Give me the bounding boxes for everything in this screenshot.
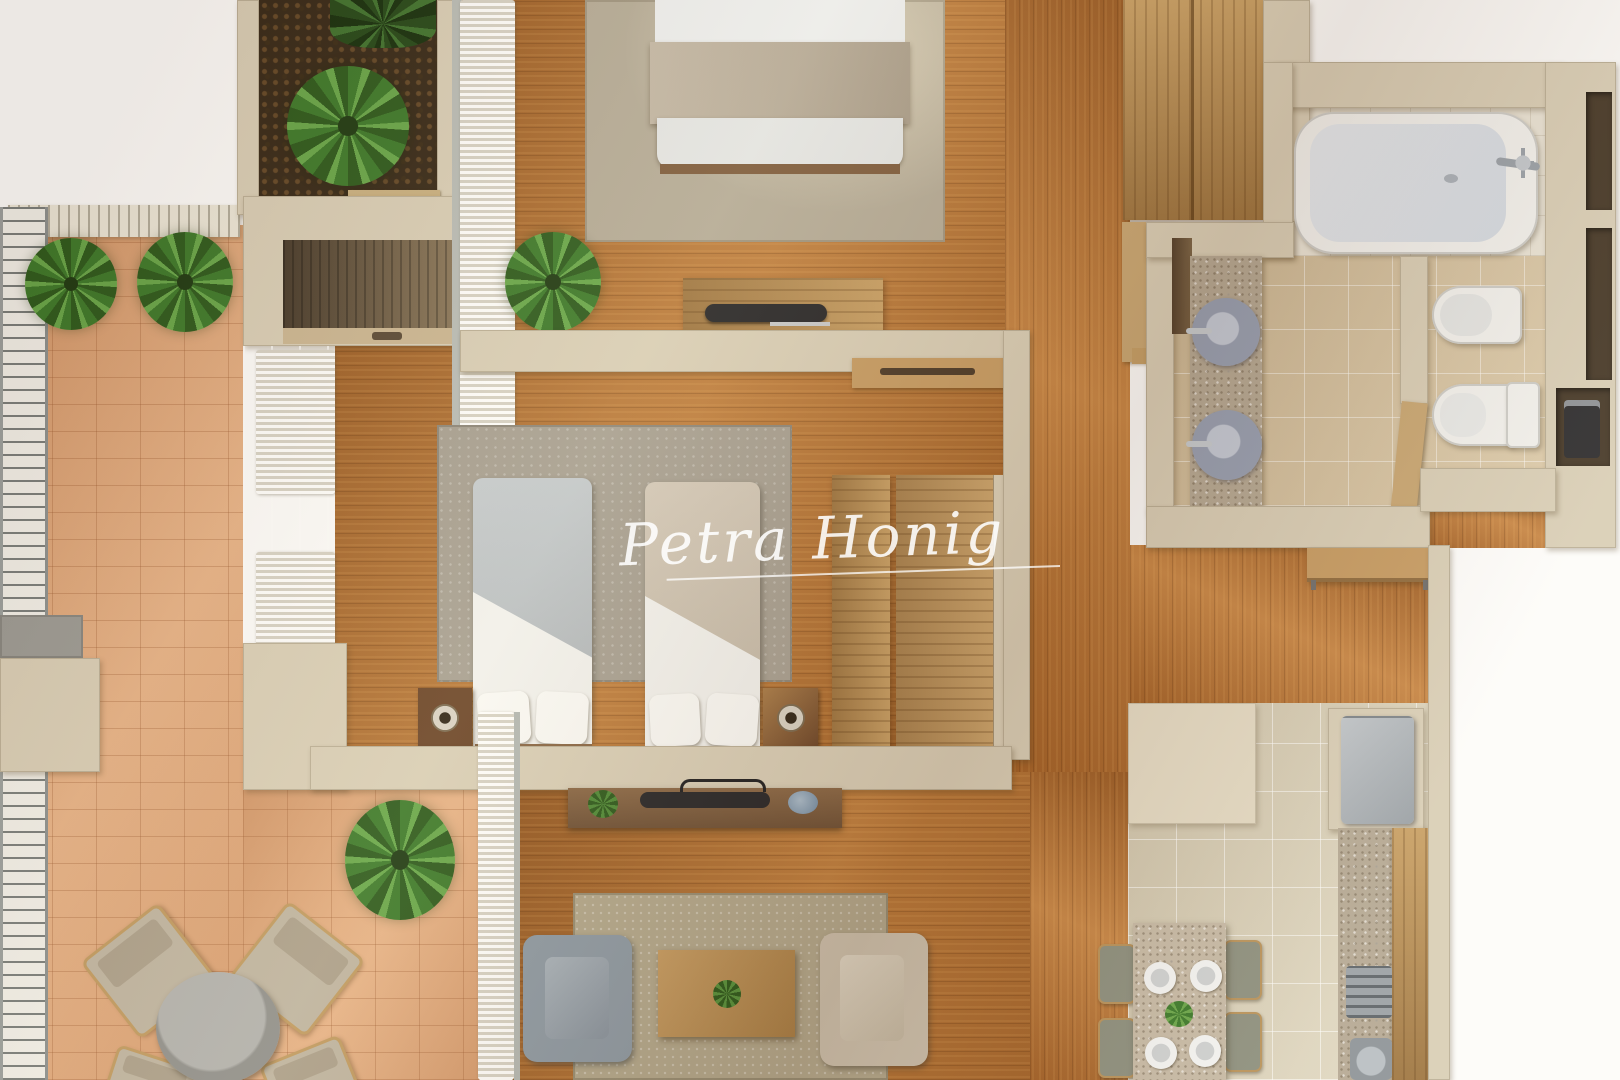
wall-niche-top	[1586, 92, 1612, 210]
plate	[1189, 1035, 1221, 1067]
master-bed	[650, 0, 910, 174]
bathroom-door-open	[1122, 222, 1148, 362]
armchair-blue	[523, 935, 632, 1062]
armchair-beige	[820, 933, 928, 1066]
hall-wardrobe-divider	[1191, 0, 1194, 220]
cooktop	[1346, 966, 1392, 1018]
washbasin-faucet-top	[1186, 328, 1212, 334]
hall-shelf-leg-left	[1311, 580, 1316, 590]
outdoor-table	[156, 972, 280, 1080]
hall-bench-handle	[880, 368, 975, 375]
bed-sheet-fold	[657, 118, 903, 168]
planter-palm	[287, 66, 409, 186]
bath-west-wall	[1146, 222, 1174, 514]
bed-frame	[660, 164, 900, 174]
armchair-seat	[840, 955, 904, 1041]
dining-chair	[1098, 944, 1136, 1004]
fridge	[1341, 716, 1414, 824]
bidet-bowl	[1440, 393, 1486, 437]
planter-wall-left	[237, 0, 259, 215]
bathtub-drain	[1444, 174, 1458, 183]
watermark-text: Petra Honig	[617, 498, 1006, 579]
glass-door-curtain-bottom	[256, 552, 335, 648]
toilet-seat	[1440, 294, 1492, 336]
master-tv	[705, 304, 827, 322]
master-tv-stand	[770, 322, 830, 326]
centerpiece-greens	[1165, 1001, 1193, 1027]
pillow	[649, 693, 702, 748]
console-bowl	[788, 791, 818, 814]
nightstand-right	[763, 688, 818, 748]
coffee-table	[658, 950, 795, 1037]
plate	[1190, 960, 1222, 992]
twin-bed-left	[473, 478, 592, 752]
dining-chair	[1098, 1018, 1136, 1078]
living-tv	[640, 792, 770, 808]
wall-niche-middle	[1586, 228, 1612, 380]
living-tv-handle	[680, 779, 766, 792]
bay-recessed-floor	[283, 240, 470, 330]
kitchen-island	[1128, 703, 1256, 824]
bath-north-wall	[1273, 62, 1563, 108]
floor-plan: Petra Honig	[0, 0, 1620, 1080]
ac-unit	[0, 615, 83, 658]
nightstand-left	[418, 688, 472, 748]
planter-bush	[330, 0, 436, 48]
hall-shelf	[1307, 548, 1437, 582]
wc-partition-wall	[1400, 256, 1428, 404]
bathtub-faucet-cross	[1512, 148, 1534, 178]
living-glass-line	[514, 712, 520, 1080]
bathtub-basin	[1310, 124, 1506, 242]
bath-northwest-wall	[1146, 222, 1294, 258]
window-handle	[372, 332, 402, 340]
wc-south-wall	[1420, 468, 1556, 512]
bath-south-wall	[1146, 506, 1430, 548]
plate	[1145, 1037, 1177, 1069]
pillow	[535, 691, 590, 746]
console-plant	[588, 790, 618, 818]
dining-chair	[1224, 940, 1262, 1000]
toilet	[1432, 286, 1522, 344]
bed-blanket	[650, 42, 910, 124]
glass-door-curtain-top	[256, 350, 335, 494]
dining-table	[1133, 923, 1226, 1080]
terrace-palm-2	[137, 232, 233, 332]
bathtub	[1294, 112, 1538, 254]
plate	[1144, 962, 1176, 994]
watermark: Petra Honig	[600, 440, 1060, 620]
washbasin-faucet-bottom	[1186, 441, 1212, 447]
kitchen-east-wall	[1428, 545, 1450, 1080]
living-blinds-west	[478, 712, 514, 1080]
pillow	[704, 692, 760, 748]
bidet	[1432, 384, 1516, 446]
dining-chair	[1224, 1012, 1262, 1072]
kitchen-cabinets-east	[1392, 828, 1428, 1080]
armchair-seat	[545, 957, 609, 1039]
terrace-palm-3	[345, 800, 455, 920]
master-plant	[505, 232, 601, 332]
niche-bottle	[1564, 400, 1600, 458]
table-plant	[713, 980, 741, 1008]
vanity-shadow	[1172, 238, 1192, 334]
kitchen-sink	[1350, 1038, 1392, 1080]
terrace-pillar	[0, 658, 100, 772]
bidet-tank	[1506, 382, 1540, 448]
terrace-palm-1	[25, 238, 117, 330]
twin-south-wall	[310, 746, 1012, 790]
